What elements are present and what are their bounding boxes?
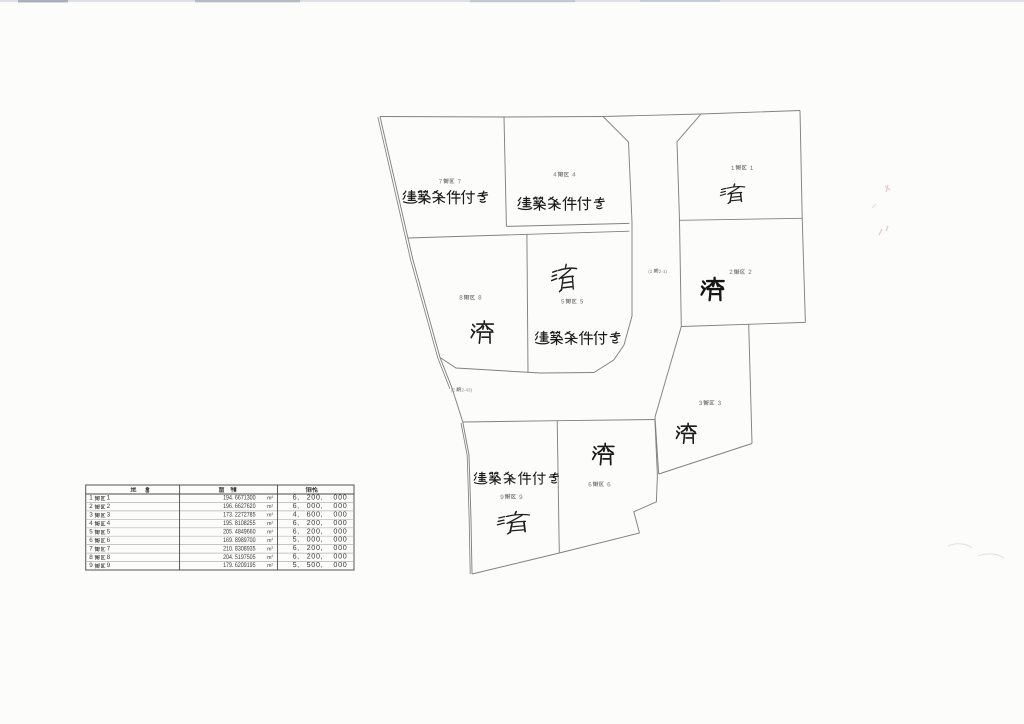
svg-text:m2: m2 [267, 563, 274, 570]
svg-text:196. 6627620: 196. 6627620 [223, 503, 256, 510]
svg-text:7: 7 [439, 178, 443, 185]
svg-text:7: 7 [458, 178, 462, 185]
svg-text:5: 5 [580, 299, 584, 306]
svg-text:m2: m2 [267, 554, 274, 561]
svg-text:4: 4 [553, 172, 557, 179]
svg-text:210. 8308935: 210. 8308935 [223, 545, 256, 552]
svg-text:4: 4 [107, 520, 111, 527]
svg-text:8: 8 [89, 554, 93, 561]
svg-text:m2: m2 [267, 537, 274, 544]
svg-text:2: 2 [107, 503, 111, 510]
svg-text:2: 2 [89, 503, 93, 510]
svg-text:000: 000 [333, 560, 347, 569]
svg-text:500,: 500, [307, 560, 324, 569]
svg-text:7: 7 [107, 545, 111, 552]
svg-text:m2: m2 [267, 546, 274, 553]
svg-text:7: 7 [89, 545, 93, 552]
svg-text:3: 3 [718, 400, 722, 407]
svg-text:8: 8 [107, 554, 111, 561]
svg-text:m2: m2 [267, 512, 274, 519]
svg-text:6: 6 [89, 537, 93, 544]
svg-text:205. 4849660: 205. 4849660 [223, 529, 256, 536]
svg-text:3: 3 [107, 512, 111, 519]
svg-text:4: 4 [89, 520, 93, 527]
svg-text:6: 6 [107, 537, 111, 544]
svg-text:9: 9 [500, 494, 504, 501]
svg-text:204. 5197505: 204. 5197505 [223, 554, 256, 561]
svg-text:5: 5 [561, 299, 565, 306]
svg-text:1: 1 [89, 495, 93, 502]
svg-text:m2: m2 [267, 504, 274, 511]
svg-text:2-43): 2-43) [461, 388, 472, 393]
svg-text:m2: m2 [267, 520, 274, 527]
svg-text:2: 2 [748, 269, 752, 276]
svg-text:m2: m2 [267, 529, 274, 536]
svg-text:194. 6671300: 194. 6671300 [223, 495, 256, 502]
svg-text:3: 3 [699, 400, 703, 407]
svg-text:8: 8 [459, 295, 463, 302]
svg-text:179. 6209195: 179. 6209195 [223, 562, 256, 569]
svg-text:9: 9 [519, 494, 523, 501]
svg-text:1: 1 [731, 165, 735, 172]
svg-text:195. 8108255: 195. 8108255 [223, 520, 256, 527]
svg-text:1: 1 [750, 165, 754, 172]
svg-text:5,: 5, [293, 560, 300, 569]
svg-text:173. 2272785: 173. 2272785 [223, 512, 256, 519]
svg-text:(2: (2 [648, 269, 653, 274]
svg-text:6: 6 [607, 481, 611, 488]
svg-text:m2: m2 [267, 495, 274, 502]
svg-text:2-1): 2-1) [659, 269, 668, 274]
svg-text:4: 4 [572, 172, 576, 179]
svg-text:3: 3 [89, 512, 93, 519]
svg-text:169. 8989700: 169. 8989700 [223, 537, 256, 544]
svg-text:(2: (2 [451, 388, 456, 393]
svg-text:1: 1 [107, 495, 111, 502]
svg-text:2: 2 [729, 269, 733, 276]
svg-text:5: 5 [107, 529, 111, 536]
svg-text:9: 9 [89, 562, 93, 569]
svg-text:9: 9 [107, 562, 111, 569]
svg-text:5: 5 [89, 529, 93, 536]
svg-text:6: 6 [588, 481, 592, 488]
svg-text:8: 8 [478, 295, 482, 302]
